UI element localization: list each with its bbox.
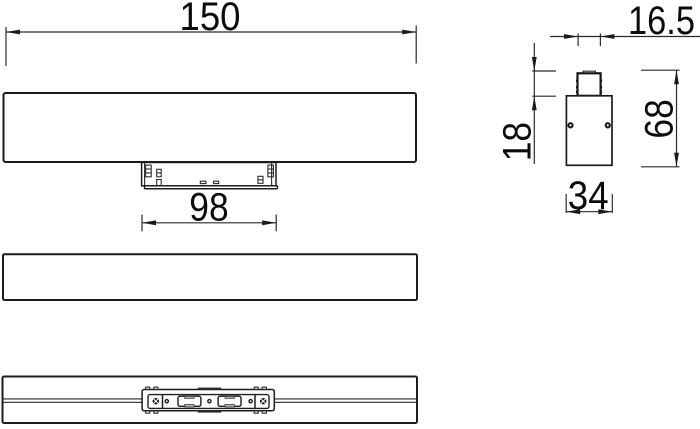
svg-text:68: 68: [638, 99, 682, 138]
svg-text:16.5: 16.5: [628, 0, 695, 43]
svg-text:18: 18: [496, 122, 540, 161]
svg-text:34: 34: [568, 174, 609, 218]
svg-text:98: 98: [189, 185, 228, 229]
svg-text:150: 150: [180, 0, 241, 39]
